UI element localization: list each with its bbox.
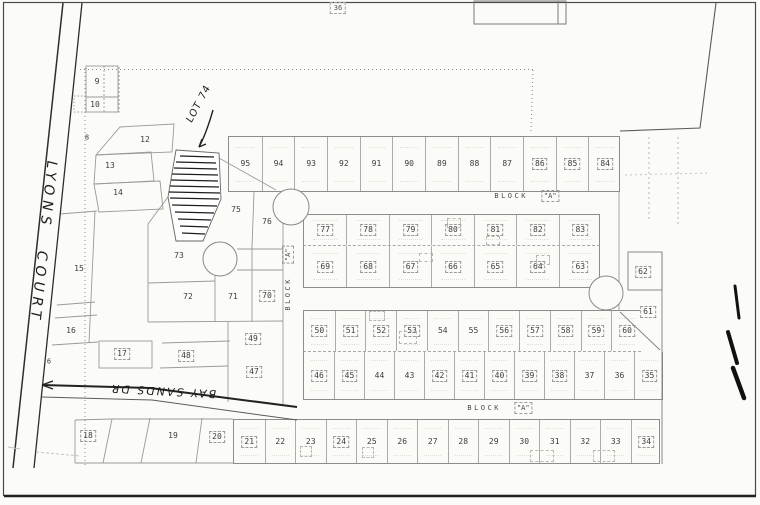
building-footprint [369, 311, 385, 321]
lot-cell: 87 [490, 137, 523, 191]
lot-number: 28 [458, 438, 468, 446]
building-footprint [419, 253, 433, 262]
lot-number: 21 [241, 436, 257, 448]
lot-number: 6 [47, 359, 51, 366]
block-b-lower: 69686766656463 [303, 246, 600, 288]
block-a-label-bottom: BLOCK "A" [467, 402, 532, 414]
building-footprint [593, 450, 615, 462]
lot-number: 51 [343, 325, 359, 337]
lot-cell: 54 [427, 311, 458, 351]
lot-number: 72 [183, 293, 193, 301]
lot-cell: 36 [604, 352, 634, 399]
lot-cell: 37 [574, 352, 604, 399]
lot-cell: 29 [478, 420, 509, 463]
lot-cell: 83 [559, 215, 601, 245]
lot74-arrow [199, 110, 213, 147]
lot-cell: 59 [581, 311, 612, 351]
lot-number: 26 [397, 438, 407, 446]
lot-number: 81 [488, 224, 504, 236]
lot-number: 39 [522, 370, 538, 382]
lot-number: 66 [445, 261, 461, 273]
lot-number: 37 [585, 372, 595, 380]
pen-marks [728, 286, 744, 398]
building-footprint [530, 450, 554, 462]
lot-cell: 26 [387, 420, 418, 463]
lot-number: 93 [306, 160, 316, 168]
lot-cell: 24 [326, 420, 357, 463]
lot-number: 69 [317, 261, 333, 273]
lot-number: 52 [373, 325, 389, 337]
lot-cell: 58 [550, 311, 581, 351]
lot-number: 62 [635, 266, 651, 278]
block-c-lower: 464544434241403938373635 [303, 352, 663, 400]
lot-cell: 35 [634, 352, 664, 399]
lot-cell: 78 [346, 215, 388, 245]
lot-number: 47 [246, 366, 262, 378]
lot-cell: 27 [417, 420, 448, 463]
lot-number: 56 [496, 325, 512, 337]
building-footprint [300, 446, 312, 457]
block-word: BLOCK [467, 404, 501, 412]
lot-number: 59 [589, 325, 605, 337]
lot-cell: 69 [304, 246, 346, 287]
lot-cell: 94 [262, 137, 295, 191]
lot-number: 74 [190, 195, 198, 202]
block-letter: "A" [514, 402, 533, 414]
lot-number: 70 [259, 290, 275, 302]
block-letter: "A" [282, 245, 294, 264]
building-footprint [536, 255, 550, 265]
lot-number: 89 [437, 160, 447, 168]
lot-cell: 44 [364, 352, 394, 399]
lot-number: 41 [462, 370, 478, 382]
lot-cell: 92 [327, 137, 360, 191]
block-word: BLOCK [284, 277, 292, 311]
block-word: BLOCK [494, 192, 528, 200]
lot-number: 83 [572, 224, 588, 236]
block-c-upper: 5051525354555657585960 [303, 310, 641, 352]
lot-number: 58 [558, 325, 574, 337]
lot-cell: 50 [304, 311, 335, 351]
lot-cell: 46 [304, 352, 334, 399]
lot-cell: 95 [229, 137, 262, 191]
lot-number: 34 [638, 436, 654, 448]
lot-cell: 85 [556, 137, 589, 191]
lot-number: 71 [228, 293, 238, 301]
lot-number: 76 [262, 218, 272, 226]
lot-number: 29 [489, 438, 499, 446]
lot-cell: 93 [294, 137, 327, 191]
lot-number: 33 [611, 438, 621, 446]
lot-number: 23 [306, 438, 316, 446]
lot-cell: 66 [431, 246, 473, 287]
lot-number: 90 [404, 160, 414, 168]
lot-number: 8 [85, 135, 89, 142]
lot-cell: 79 [389, 215, 431, 245]
lot-cell: 55 [458, 311, 489, 351]
lot-cell: 28 [448, 420, 479, 463]
lot74-handwritten-note: LOT 74 [185, 83, 213, 125]
lot-number: 17 [114, 348, 130, 360]
lot-number: 13 [105, 162, 115, 170]
lot-cell: 82 [516, 215, 558, 245]
lot-number: 50 [312, 325, 328, 337]
lot-number: 87 [502, 160, 512, 168]
lot-cell: 60 [611, 311, 642, 351]
lot-cell: 56 [488, 311, 519, 351]
sheet-number-stamp: 36 [330, 2, 346, 14]
lot-number: 18 [80, 430, 96, 442]
lot-number: 60 [619, 325, 635, 337]
lot-number: 24 [333, 436, 349, 448]
lot-number: 57 [527, 325, 543, 337]
lot-number: 19 [168, 432, 178, 440]
block-row-top: 959493929190898887868584 [228, 136, 620, 192]
pencil-smudges [8, 447, 80, 456]
lot-number: 55 [469, 327, 479, 335]
lot-number: 10 [90, 101, 100, 109]
lot-number: 82 [530, 224, 546, 236]
lot-number: 65 [488, 261, 504, 273]
lot-cell: 64 [516, 246, 558, 287]
lot-number: 94 [274, 160, 284, 168]
lot-cell: 68 [346, 246, 388, 287]
lot-cell: 43 [394, 352, 424, 399]
lot-number: 32 [580, 438, 590, 446]
lot-number: 22 [275, 438, 285, 446]
lot-number: 54 [438, 327, 448, 335]
plat-canvas: LYONS COURT BAY SANDS DR LOT 74 36 BLOCK… [0, 0, 760, 505]
lot-number: 88 [470, 160, 480, 168]
lot-cell: 91 [360, 137, 393, 191]
lot-number: 15 [74, 265, 84, 273]
lot-number: 73 [174, 252, 184, 260]
lot-number: 16 [66, 327, 76, 335]
lot-number: 27 [428, 438, 438, 446]
building-footprint [399, 331, 417, 344]
lot-number: 85 [565, 158, 581, 170]
lot-cell: 65 [474, 246, 516, 287]
lot-number: 42 [432, 370, 448, 382]
building-footprint [486, 236, 500, 245]
lot-cell: 39 [514, 352, 544, 399]
lot-number: 20 [209, 431, 225, 443]
lot-cell: 45 [334, 352, 364, 399]
lot-cell: 89 [425, 137, 458, 191]
lot-number: 67 [403, 261, 419, 273]
lot-cell: 88 [458, 137, 491, 191]
block-letter: "A" [541, 190, 560, 202]
lot-cell: 41 [454, 352, 484, 399]
block-a-label-top: BLOCK "A" [494, 190, 559, 202]
lot-number: 40 [492, 370, 508, 382]
lot-number: 84 [597, 158, 613, 170]
lot-number: 38 [552, 370, 568, 382]
lot-number: 25 [367, 438, 377, 446]
block-a-label-vertical: BLOCK "A" [282, 245, 294, 310]
lot-number: 63 [572, 261, 588, 273]
lot-cell: 51 [335, 311, 366, 351]
lot-number: 43 [405, 372, 415, 380]
lot-number: 49 [245, 333, 261, 345]
lot-cell: 42 [424, 352, 454, 399]
lot-number: 79 [403, 224, 419, 236]
lot-number: 61 [640, 306, 656, 318]
lot-cell: 57 [519, 311, 550, 351]
building-footprint [447, 218, 461, 228]
lot-number: 68 [360, 261, 376, 273]
lot-number: 35 [642, 370, 658, 382]
lot-number: 95 [241, 160, 251, 168]
lot-number: 92 [339, 160, 349, 168]
lot-cell: 34 [631, 420, 662, 463]
lot-cell: 22 [265, 420, 296, 463]
lot-cell: 63 [559, 246, 601, 287]
lot-number: 91 [372, 160, 382, 168]
lot-number: 78 [360, 224, 376, 236]
lot-cell: 40 [484, 352, 514, 399]
lot-cell: 86 [523, 137, 556, 191]
lot-number: 12 [140, 136, 150, 144]
lot-cell: 90 [392, 137, 425, 191]
lot-number: 30 [519, 438, 529, 446]
lot-cell: 38 [544, 352, 574, 399]
lyons-court-street-label: LYONS COURT [27, 159, 60, 326]
building-footprint [362, 447, 374, 458]
lot-number: 45 [342, 370, 358, 382]
lot-number: 31 [550, 438, 560, 446]
lot-number: 75 [231, 206, 241, 214]
lot-number: 46 [311, 370, 327, 382]
lot-number: 44 [375, 372, 385, 380]
lot-number: 86 [532, 158, 548, 170]
lot-cell: 21 [234, 420, 265, 463]
lot-number: 77 [317, 224, 333, 236]
lot-cell: 77 [304, 215, 346, 245]
lot-cell: 84 [588, 137, 621, 191]
lot-number: 14 [113, 189, 123, 197]
bay-sands-street-label: BAY SANDS DR [108, 382, 217, 400]
lot-number: 9 [95, 78, 100, 86]
lot-number: 48 [178, 350, 194, 362]
lot-number: 36 [615, 372, 625, 380]
